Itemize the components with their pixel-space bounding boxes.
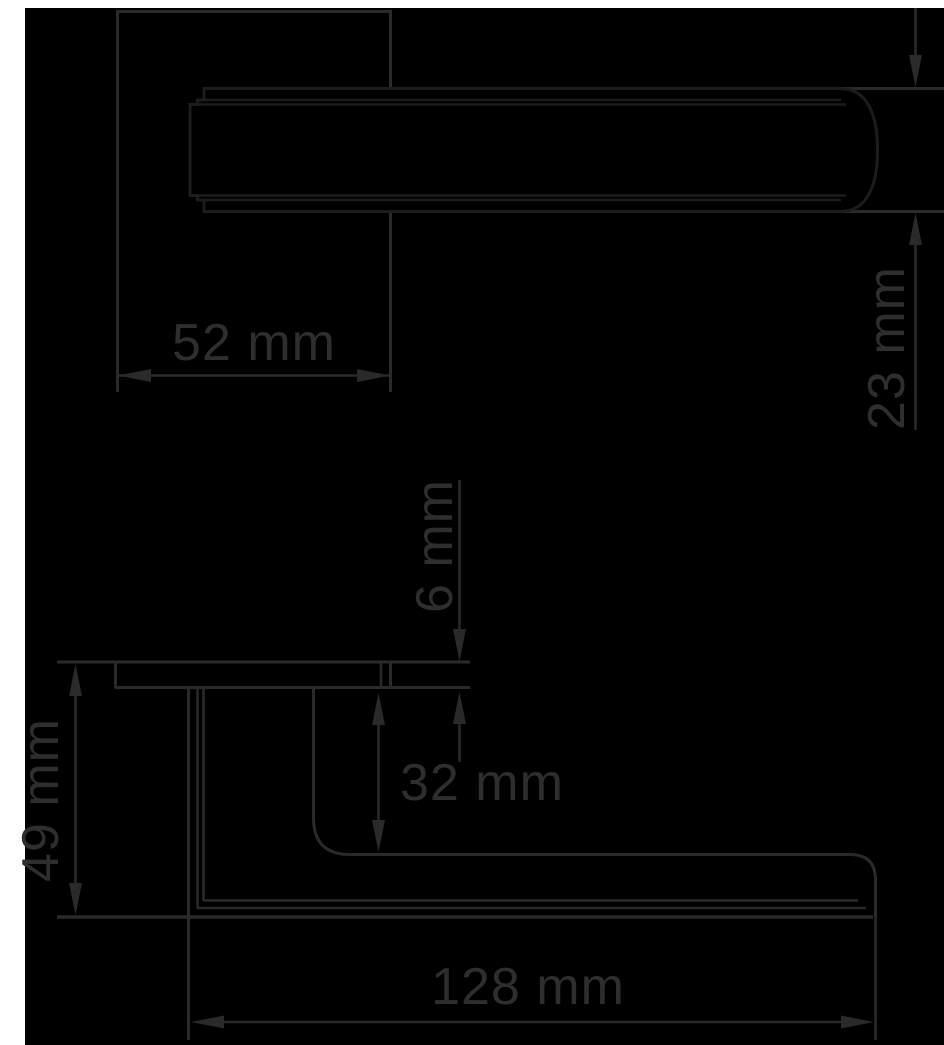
dimension-label-128mm: 128 mm bbox=[431, 958, 625, 1016]
dimension-label-32mm: 32 mm bbox=[400, 754, 564, 812]
drawing-canvas: 52 mm 23 mm bbox=[0, 0, 944, 1045]
dimension-label-23mm: 23 mm bbox=[858, 266, 916, 430]
dimension-label-49mm: 49 mm bbox=[12, 718, 70, 882]
top-margin bbox=[0, 0, 944, 8]
left-margin bbox=[0, 0, 25, 1045]
drawing-background bbox=[0, 0, 944, 1045]
dimension-label-52mm: 52 mm bbox=[172, 314, 336, 372]
handle-dimension-drawing: 52 mm 23 mm bbox=[0, 0, 944, 1045]
dimension-label-6mm: 6 mm bbox=[406, 479, 464, 613]
